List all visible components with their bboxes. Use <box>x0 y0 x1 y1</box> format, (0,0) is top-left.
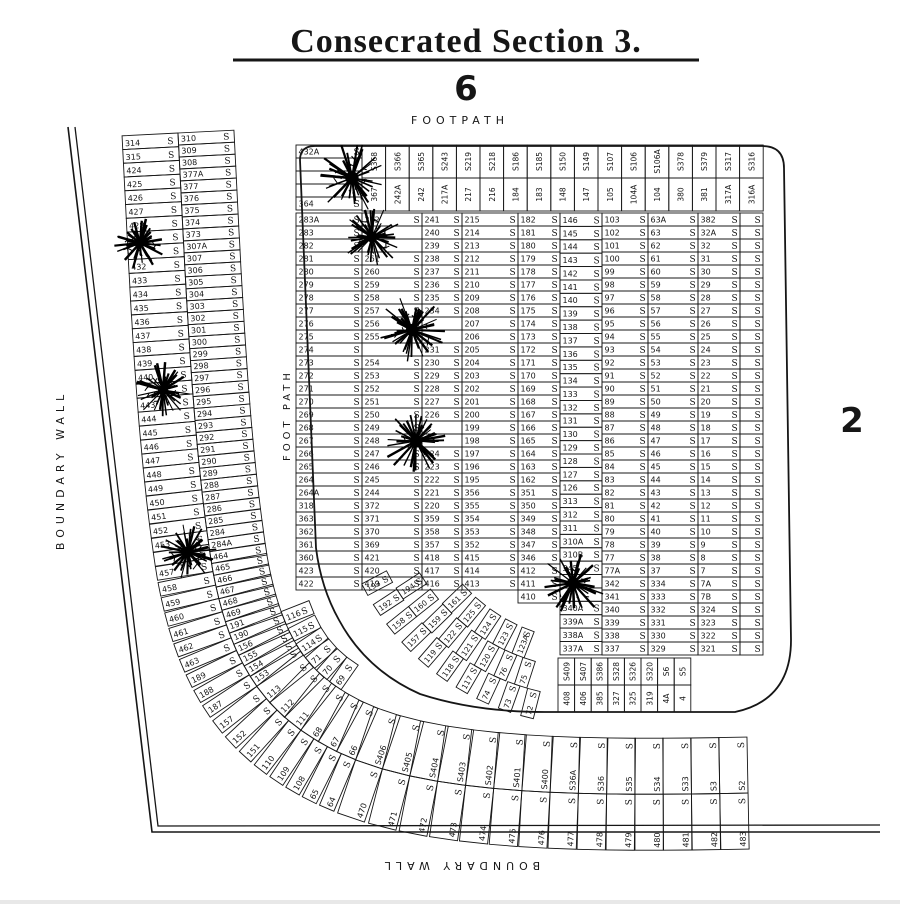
plot-number: 59 <box>651 281 661 290</box>
plot-number: S <box>354 281 360 291</box>
plot-cell: 327 <box>608 685 625 712</box>
plot-number: S <box>640 307 646 317</box>
plot-number: S <box>640 450 646 460</box>
plot-number: S <box>344 663 356 674</box>
plot-number: S <box>510 372 516 382</box>
plot-number: S <box>568 798 578 805</box>
plot-number: S <box>510 398 516 408</box>
plot-cell: 82S <box>602 486 648 499</box>
plot-number: S <box>404 610 415 622</box>
plot-cell: S <box>740 213 763 226</box>
plot-number: S <box>640 632 646 642</box>
plot-number: S <box>454 450 460 460</box>
plot-cell: 31S <box>698 252 740 265</box>
plot-cell: 208S <box>462 304 518 317</box>
plot-cell: 7BS <box>698 590 740 603</box>
plot-number: 168 <box>521 398 536 407</box>
plot-cell: 352S <box>462 538 518 551</box>
plot-cell: 237S <box>422 265 462 278</box>
plot-cell: 264S <box>296 473 362 486</box>
plot-number: S106A <box>653 149 662 174</box>
plot-number: S <box>231 288 238 298</box>
plot-number: 319 <box>645 691 654 706</box>
plot-number: 303 <box>189 302 205 312</box>
plot-number: 267 <box>299 437 314 446</box>
plot-number: 105 <box>606 187 615 202</box>
plot-number: S <box>510 242 516 252</box>
plot-number: S <box>510 424 516 434</box>
plot-number: S378 <box>677 152 686 171</box>
plot-number: 48 <box>651 424 661 433</box>
plot-number: 340 <box>605 606 620 615</box>
plot-cell: S <box>740 512 763 525</box>
plot-number: 272 <box>299 372 314 381</box>
plot-number: 167 <box>521 411 536 420</box>
plot-number: 91 <box>605 372 615 381</box>
plot-number: 221 <box>425 489 440 498</box>
plot-number: 157 <box>406 632 423 649</box>
plot-number: S <box>594 257 600 267</box>
plot-cell: 475S <box>489 788 522 846</box>
plot-number: 230 <box>425 359 440 368</box>
plot-number: S <box>640 320 646 330</box>
plot-cell: 283AS <box>296 213 362 226</box>
plot-number: S <box>418 626 429 637</box>
plot-number: S <box>594 511 600 521</box>
plot-number: S <box>640 489 646 499</box>
plot-number: S <box>510 281 516 291</box>
plot-number: 264A <box>299 489 320 498</box>
plot-number: S <box>193 508 200 519</box>
plot-number: 85 <box>605 450 615 459</box>
plot-number: 242 <box>417 187 426 202</box>
plot-number: S <box>434 641 445 652</box>
plot-cell: 325 <box>624 685 641 712</box>
plot-number: S <box>732 437 738 447</box>
plot-number: S <box>229 252 236 262</box>
plot-number: S <box>732 476 738 486</box>
plot-number: S <box>242 442 249 453</box>
plot-number: 294 <box>197 409 213 419</box>
plot-cell: 99S <box>602 265 648 278</box>
plot-cell: 140S <box>560 293 602 306</box>
plot-number: 11 <box>701 515 711 524</box>
plot-number: S <box>510 476 516 486</box>
plot-cell: 116S <box>281 601 314 625</box>
plot-number: 329 <box>651 645 666 654</box>
plot-cell: 136S <box>560 347 602 360</box>
plot-number: 92 <box>605 359 615 368</box>
plot-number: 203 <box>465 372 480 381</box>
plot-number: 351 <box>521 489 536 498</box>
plot-number: S <box>243 453 250 464</box>
plot-number: S150 <box>559 152 568 171</box>
plot-number: 354 <box>465 515 480 524</box>
plot-cell: 126S <box>560 481 602 494</box>
plot-cell: 354S <box>462 512 518 525</box>
plot-number: S <box>240 418 247 428</box>
plot-number: S <box>387 717 398 726</box>
plot-number: 255 <box>365 333 380 342</box>
plot-number: S <box>414 372 420 382</box>
plot-cell: 337AS <box>560 641 602 654</box>
plot-number: 143 <box>563 256 578 265</box>
plot-cell: 244S <box>362 486 422 499</box>
plot-number: S <box>523 660 534 669</box>
plot-cell: 91S <box>602 369 648 382</box>
plot-cell: S <box>740 252 763 265</box>
plot-number: S <box>414 385 420 395</box>
plot-number: S386 <box>596 662 605 681</box>
plot-number: 406 <box>579 691 588 706</box>
plot-number: 160 <box>412 598 429 614</box>
plot-number: 20 <box>701 398 711 407</box>
plot-number: 463 <box>183 656 201 670</box>
plot-number: S <box>354 463 360 473</box>
plot-number: S218 <box>488 152 497 171</box>
plot-number: 209 <box>465 294 480 303</box>
plot-cell: 25S <box>698 330 740 343</box>
plot-cell: 76S <box>494 650 517 681</box>
plot-cell: 74S <box>477 673 501 704</box>
plot-number: 361 <box>299 541 314 550</box>
plot-number: S <box>594 297 600 307</box>
plot-number: S <box>173 261 180 271</box>
plot-number: S <box>510 385 516 395</box>
plot-cell: 30S <box>698 265 740 278</box>
plot-number: S <box>354 255 360 265</box>
plot-number: S <box>640 294 646 304</box>
plot-number: S <box>732 268 738 278</box>
plot-cell: 238S <box>422 252 462 265</box>
plot-cell: 88S <box>602 408 648 421</box>
plot-number: 146 <box>563 216 578 225</box>
plot-number: S <box>176 302 183 312</box>
plot-number: 52 <box>651 372 661 381</box>
plot-number: 410 <box>521 593 536 602</box>
plot-number: S <box>755 294 761 304</box>
plot-number: S <box>454 621 466 632</box>
plot-number: S <box>755 398 761 408</box>
plot-cell: 234S <box>422 304 462 317</box>
plot-number: 68 <box>311 725 324 738</box>
plot-cell: 177S <box>518 278 560 291</box>
plot-number: S <box>354 268 360 278</box>
plot-cell: S33S <box>663 738 692 794</box>
plot-number: S <box>454 541 460 551</box>
plot-cell: 97S <box>602 291 648 304</box>
plot-cell: 444S <box>138 408 195 426</box>
plot-number: S <box>414 398 420 408</box>
plot-number: 171 <box>521 359 536 368</box>
plot-cell: S <box>740 629 763 642</box>
plot-cell: 271S <box>296 382 362 395</box>
plot-number: 241 <box>425 216 440 225</box>
plot-cell: 95S <box>602 317 648 330</box>
plot-cell: 332S <box>648 603 698 616</box>
plot-number: 342 <box>605 580 620 589</box>
plot-number: S <box>414 281 420 291</box>
plot-number: 447 <box>145 456 161 466</box>
plot-number: 475 <box>507 828 517 844</box>
plot-number: S <box>178 343 185 353</box>
plot-number: 77A <box>605 567 621 576</box>
plot-number: 78 <box>605 541 615 550</box>
plot-number: 370 <box>365 528 380 537</box>
plot-cell: 143S <box>560 253 602 266</box>
plot-cell: S326 <box>624 658 641 685</box>
plot-number: S <box>552 528 558 538</box>
plot-number: S <box>369 770 380 779</box>
plot-cell: 43S <box>648 486 698 499</box>
plot-cell: 123AS <box>512 627 534 658</box>
plot-number: S <box>439 608 450 619</box>
plot-number: S <box>732 515 738 525</box>
plot-cell: 276S <box>296 317 362 330</box>
plot-cell: 29S <box>698 278 740 291</box>
plot-cell: 20S <box>698 395 740 408</box>
plot-cell: S320 <box>641 658 658 685</box>
plot-number: S <box>690 606 696 616</box>
plot-number: 334 <box>651 580 666 589</box>
plot-cell: 170S <box>518 369 560 382</box>
plot-cell: 272S <box>296 369 362 382</box>
plot-cell: S <box>740 473 763 486</box>
plot-number: S <box>414 216 420 226</box>
plot-cell: 165S <box>518 434 560 447</box>
plot-number: 418 <box>425 554 440 563</box>
plot-number: 201 <box>465 398 480 407</box>
plot-number: S <box>755 541 761 551</box>
plot-cell: S2S <box>719 737 748 794</box>
plot-number: 175 <box>521 307 536 316</box>
plot-number: S <box>732 307 738 317</box>
plot-number: S <box>414 567 420 577</box>
plot-number: 147 <box>582 187 591 202</box>
plot-cell: S <box>740 317 763 330</box>
plot-cell: 196S <box>462 460 518 473</box>
plot-cell: 60S <box>648 265 698 278</box>
plot-number: S <box>248 500 255 511</box>
plot-cell: 16S <box>698 447 740 460</box>
plot-cell: 356S <box>462 486 518 499</box>
plot-number: 54 <box>651 346 661 355</box>
plot-number: S <box>552 424 558 434</box>
plot-cell: S <box>740 642 763 655</box>
plot-cell: 346S <box>518 551 560 564</box>
plot-number: 337 <box>605 645 620 654</box>
plot-number: 31 <box>701 255 711 264</box>
plot-number: S <box>594 337 600 347</box>
plot-cell: S366 <box>386 145 410 178</box>
plot-cell: 53S <box>648 356 698 369</box>
plot-cell: 92S <box>602 356 648 369</box>
plot-number: 448 <box>146 470 162 481</box>
plot-number: S <box>640 554 646 564</box>
plot-number: S <box>206 590 214 601</box>
plot-number: S <box>625 799 635 805</box>
plot-number: 412 <box>521 567 536 576</box>
plot-number: S <box>177 316 184 326</box>
plot-number: 313 <box>563 497 578 506</box>
plot-number: 414 <box>465 567 480 576</box>
plot-number: S <box>732 411 738 421</box>
plot-number: 22 <box>701 372 711 381</box>
plot-number: 280 <box>299 268 314 277</box>
plot-number: 349 <box>521 515 536 524</box>
plot-number: 452 <box>152 526 168 537</box>
cemetery-plan-page: 432AS364S283AS283S282S281S280S279S278S27… <box>0 0 900 900</box>
plot-number: S <box>755 307 761 317</box>
plot-number: S <box>681 799 691 805</box>
plot-number: 281 <box>299 255 314 264</box>
plot-cell: 418S <box>422 551 462 564</box>
plot-cell: 199S <box>462 421 518 434</box>
plot-cell: S316 <box>740 145 764 178</box>
plot-cell: 13S <box>698 486 740 499</box>
plot-number: 7 <box>701 567 706 576</box>
plot-number: S <box>246 477 253 488</box>
plot-number: S <box>552 385 558 395</box>
plot-number: 433 <box>132 276 148 286</box>
plot-number: S <box>354 359 360 369</box>
plot-number: S <box>552 268 558 278</box>
plot-cell: 210S <box>462 278 518 291</box>
plot-cell: 478S <box>577 793 607 850</box>
plot-cell: 274S <box>296 343 362 356</box>
plot-number: S <box>454 476 460 486</box>
plot-cell: 357S <box>422 538 462 551</box>
plot-number: S <box>454 385 460 395</box>
plot-number: S <box>640 411 646 421</box>
plot-number: 199 <box>465 424 480 433</box>
plot-number: 371 <box>365 515 380 524</box>
plot-number: 332 <box>651 606 666 615</box>
plot-number: S <box>459 588 470 599</box>
plot-number: S <box>187 453 194 464</box>
plot-number: S <box>594 364 600 374</box>
plot-cell: 17S <box>698 434 740 447</box>
plot-number: 426 <box>128 193 144 203</box>
plot-cell: 180S <box>518 239 560 252</box>
plot-cell: 371S <box>362 512 422 525</box>
plot-cell: 245S <box>362 473 422 486</box>
plot-number: 423 <box>299 567 314 576</box>
plot-cell: 55S <box>648 330 698 343</box>
plot-number: 271 <box>299 385 314 394</box>
plot-number: S379 <box>700 152 709 171</box>
plot-number: 333 <box>651 593 666 602</box>
plot-number: S <box>732 216 738 226</box>
plot-number: S317 <box>724 152 733 171</box>
plot-cell: 23S <box>698 356 740 369</box>
plot-number: 337A <box>563 644 584 653</box>
plot-number: 478 <box>595 832 604 847</box>
plot-cell: 86S <box>602 434 648 447</box>
plot-cell: 275S <box>296 330 362 343</box>
plot-cell: 32S <box>698 239 740 252</box>
plot-number: S <box>508 685 519 694</box>
plot-cell: 322S <box>698 629 740 642</box>
plot-number: S <box>454 255 460 265</box>
plot-number: 26 <box>701 320 711 329</box>
plot-cell: 166S <box>518 421 560 434</box>
plot-cell: 206S <box>462 330 518 343</box>
plot-number: S <box>640 515 646 525</box>
plot-number: S <box>436 729 447 737</box>
plot-number: S <box>732 645 738 655</box>
plot-number: 432A <box>299 148 320 157</box>
plot-number: S <box>230 264 237 274</box>
plot-number: S <box>191 494 198 505</box>
plot-number: S407 <box>579 662 588 681</box>
plot-number: S <box>690 476 696 486</box>
plot-cell: S <box>740 538 763 551</box>
plot-number: S <box>510 268 516 278</box>
plot-number: S <box>640 255 646 265</box>
plot-number: 43 <box>651 489 661 498</box>
plot-number: S <box>179 357 186 367</box>
plot-number: S <box>230 276 237 286</box>
plot-cell: 80S <box>602 512 648 525</box>
plot-number: 251 <box>365 398 380 407</box>
plot-number: 315 <box>125 152 141 162</box>
plot-cell: 445S <box>139 421 196 440</box>
plot-number: S <box>640 229 646 239</box>
plot-number: 61 <box>651 255 661 264</box>
plot-number: S <box>690 450 696 460</box>
plot-number: S <box>321 684 333 695</box>
plot-number: S <box>594 230 600 240</box>
plot-number: S <box>510 580 516 590</box>
plot-cell: 470S <box>338 760 383 822</box>
plot-number: 283 <box>299 229 314 238</box>
plot-number: S <box>454 281 460 291</box>
plot-number: S <box>755 515 761 525</box>
plot-cell: S <box>740 395 763 408</box>
plot-number: S <box>755 645 761 655</box>
plot-number: S <box>732 580 738 590</box>
plot-number: S <box>755 359 761 369</box>
plot-number: S <box>732 320 738 330</box>
plot-cell: S <box>740 343 763 356</box>
plot-number: S <box>594 524 600 534</box>
plot-number: S <box>354 567 360 577</box>
plot-number: 179 <box>521 255 536 264</box>
plot-number: S <box>354 554 360 564</box>
plot-cell: 228S <box>422 382 462 395</box>
plot-number: S <box>755 606 761 616</box>
plot-cell: 204S <box>462 356 518 369</box>
plot-number: 24 <box>701 346 711 355</box>
plot-cell: 311S <box>560 521 602 534</box>
plot-number: S <box>594 471 600 481</box>
plot-cell <box>296 158 362 171</box>
plot-number: S <box>510 567 516 577</box>
plot-number: S <box>168 151 175 161</box>
plot-number: 265 <box>299 463 314 472</box>
plot-number: S <box>238 394 245 404</box>
plot-number: 470 <box>356 802 369 819</box>
plot-number: 248 <box>365 437 380 446</box>
plot-cell: 257S <box>362 304 422 317</box>
plot-number: 212 <box>465 255 480 264</box>
plot-number: 50 <box>651 398 661 407</box>
plot-number: 125 <box>461 607 477 624</box>
footpath-label-left: FOOT PATH <box>282 369 293 461</box>
plot-number: 417 <box>425 567 440 576</box>
plot-number: S <box>690 229 696 239</box>
